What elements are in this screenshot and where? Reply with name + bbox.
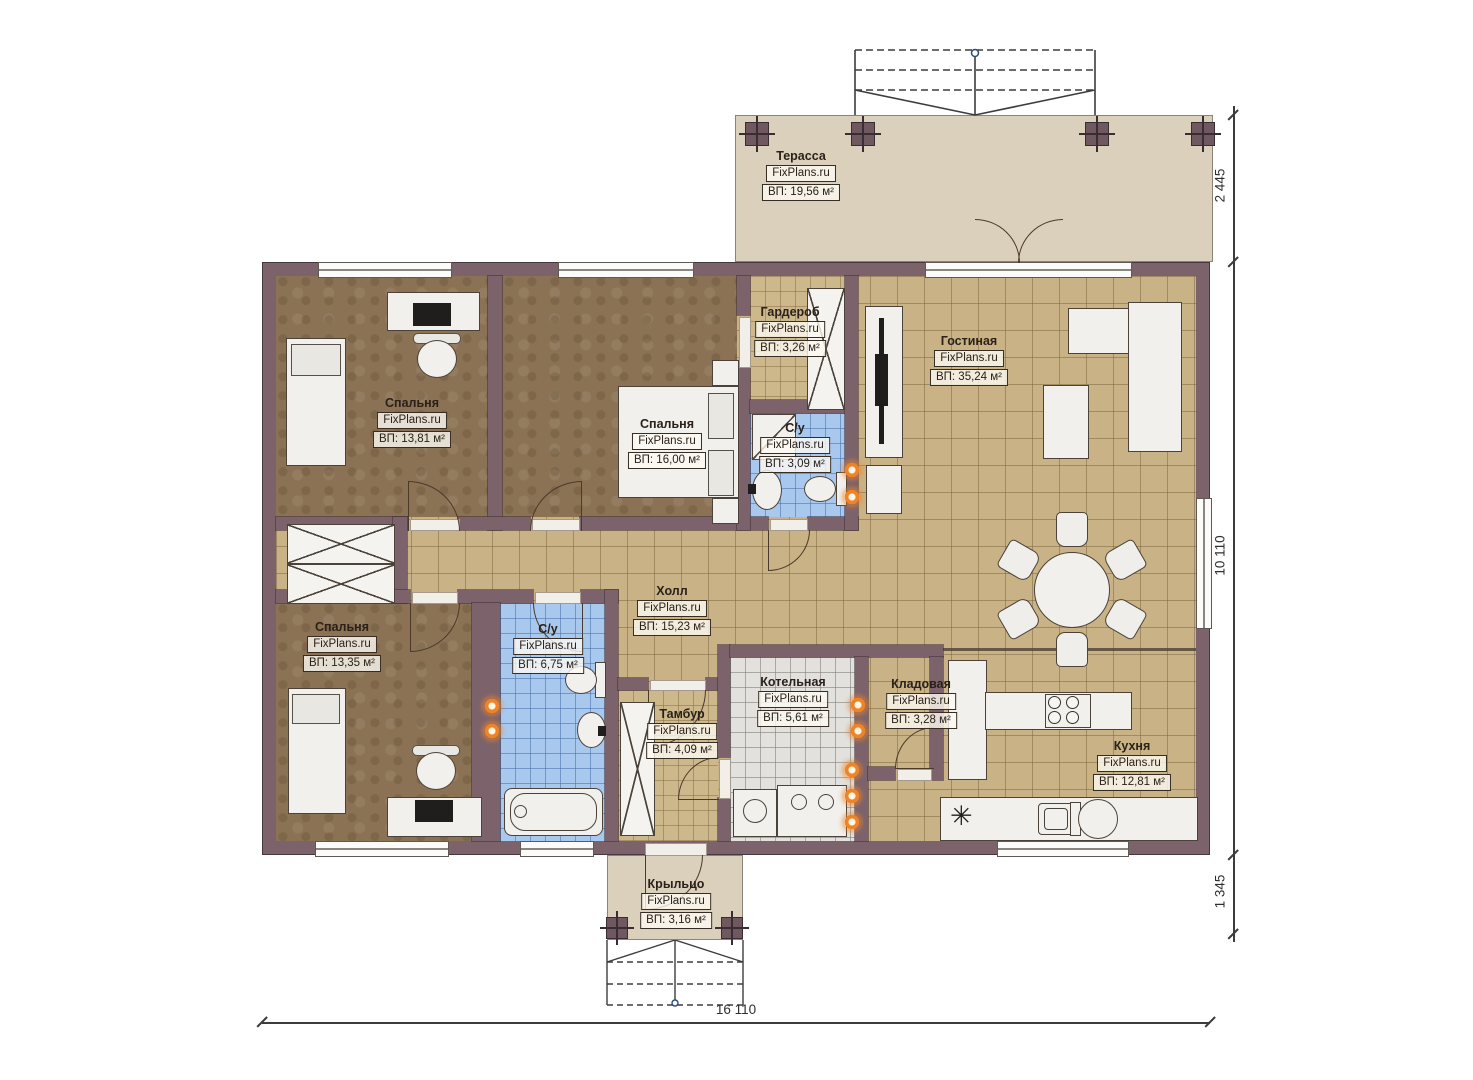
burner-icon xyxy=(1066,711,1079,724)
outlet-icon xyxy=(844,462,860,478)
room-name: Холл xyxy=(656,584,687,598)
room-area: ВП: 6,75 м² xyxy=(512,657,584,674)
terrace-stairs-icon xyxy=(853,46,1097,116)
wall-segment xyxy=(718,645,730,757)
window xyxy=(318,262,452,278)
burner-icon xyxy=(1066,696,1079,709)
hall-closet-icon xyxy=(287,564,395,604)
watermark: FixPlans.ru xyxy=(513,638,583,655)
fridge-icon: ✳ xyxy=(950,803,973,830)
outlet-icon xyxy=(484,723,500,739)
room-area: ВП: 4,09 м² xyxy=(646,742,718,759)
column-icon xyxy=(851,122,875,146)
room-label-living: Гостиная FixPlans.ru ВП: 35,24 м² xyxy=(930,334,1008,386)
computer-icon xyxy=(413,303,451,326)
wall-segment xyxy=(488,276,502,530)
watermark: FixPlans.ru xyxy=(760,437,830,454)
room-label-tambur: Тамбур FixPlans.ru ВП: 4,09 м² xyxy=(646,707,718,759)
column-icon xyxy=(721,917,743,939)
watermark: FixPlans.ru xyxy=(632,433,702,450)
window xyxy=(558,262,694,278)
office-chair-icon xyxy=(416,752,456,790)
nightstand-icon xyxy=(712,360,739,386)
door-threshold xyxy=(719,759,731,799)
hall-closet-icon xyxy=(287,524,395,564)
room-label-boiler: Котельная FixPlans.ru ВП: 5,61 м² xyxy=(757,675,829,727)
column-icon xyxy=(745,122,769,146)
watermark: FixPlans.ru xyxy=(647,723,717,740)
faucet-icon xyxy=(748,484,756,494)
room-name: Кухня xyxy=(1114,739,1151,753)
wall-segment xyxy=(855,657,868,841)
wall-segment xyxy=(718,798,730,841)
dimension-label-house-width: 16 110 xyxy=(696,1002,776,1017)
faucet-icon xyxy=(598,726,606,736)
burner-icon xyxy=(1048,711,1061,724)
dimension-label-house-depth: 10 110 xyxy=(1213,521,1228,591)
pillow-icon xyxy=(708,393,734,439)
room-label-kitchen: Кухня FixPlans.ru ВП: 12,81 м² xyxy=(1093,739,1171,791)
watermark: FixPlans.ru xyxy=(934,350,1004,367)
watermark: FixPlans.ru xyxy=(766,165,836,182)
column-icon xyxy=(1085,122,1109,146)
room-name: Крыльцо xyxy=(648,877,705,891)
wall-segment xyxy=(706,678,718,690)
watermark: FixPlans.ru xyxy=(377,412,447,429)
room-label-wardrobe: Гардероб FixPlans.ru ВП: 3,26 м² xyxy=(754,305,826,357)
watermark: FixPlans.ru xyxy=(637,600,707,617)
boiler-valve-icon xyxy=(818,794,834,810)
dining-chair-icon xyxy=(1056,512,1088,547)
wall-segment xyxy=(458,590,533,603)
watermark: FixPlans.ru xyxy=(307,636,377,653)
boiler-drum-icon xyxy=(743,799,767,823)
watermark: FixPlans.ru xyxy=(641,893,711,910)
boiler-valve-icon xyxy=(791,794,807,810)
room-label-bedroom3: Спальня FixPlans.ru ВП: 13,35 м² xyxy=(303,620,381,672)
room-name: Гостиная xyxy=(941,334,998,348)
watermark: FixPlans.ru xyxy=(758,691,828,708)
dimension-line-right xyxy=(1233,106,1235,942)
dining-table-icon xyxy=(1034,552,1110,628)
room-area: ВП: 13,35 м² xyxy=(303,655,381,672)
room-area: ВП: 3,28 м² xyxy=(885,712,957,729)
room-label-bath1: С/у FixPlans.ru ВП: 3,09 м² xyxy=(759,421,831,473)
room-label-terrace: Терасса FixPlans.ru ВП: 19,56 м² xyxy=(762,149,840,201)
door-threshold xyxy=(739,317,751,368)
room-area: ВП: 5,61 м² xyxy=(757,710,829,727)
dimension-label-terrace-depth: 2 445 xyxy=(1213,151,1228,221)
wall-segment xyxy=(458,517,530,530)
boiler-counter-icon xyxy=(777,785,847,837)
pillow-icon xyxy=(291,344,341,376)
column-icon xyxy=(606,917,628,939)
room-area: ВП: 13,81 м² xyxy=(373,431,451,448)
wall-segment xyxy=(868,767,895,780)
outlet-icon xyxy=(844,814,860,830)
room-area: ВП: 3,16 м² xyxy=(640,912,712,929)
wall-segment xyxy=(618,678,648,690)
dimension-line-bottom xyxy=(262,1022,1210,1024)
room-label-hall: Холл FixPlans.ru ВП: 15,23 м² xyxy=(633,584,711,636)
room-area: ВП: 12,81 м² xyxy=(1093,774,1171,791)
window xyxy=(1196,498,1212,629)
room-name: Котельная xyxy=(760,675,825,689)
sink-basin xyxy=(1044,808,1068,830)
watermark: FixPlans.ru xyxy=(1097,755,1167,772)
pillow-icon xyxy=(292,694,340,724)
door-threshold xyxy=(897,769,932,781)
terrace-door-window xyxy=(925,262,1132,278)
room-name: Гардероб xyxy=(760,305,819,319)
watermark: FixPlans.ru xyxy=(755,321,825,338)
watermark: FixPlans.ru xyxy=(886,693,956,710)
tv-bracket-icon xyxy=(875,354,888,406)
room-name: С/у xyxy=(538,622,557,636)
outlet-icon xyxy=(850,697,866,713)
room-name: Тамбур xyxy=(659,707,704,721)
window xyxy=(520,841,594,857)
window xyxy=(315,841,449,857)
room-area: ВП: 19,56 м² xyxy=(762,184,840,201)
stool-icon xyxy=(1078,799,1118,839)
office-chair-icon xyxy=(417,340,457,378)
room-name: Спальня xyxy=(385,396,439,410)
window xyxy=(997,841,1129,857)
wall-segment xyxy=(737,276,750,315)
sink-icon xyxy=(752,470,782,510)
room-label-bath2: С/у FixPlans.ru ВП: 6,75 м² xyxy=(512,622,584,674)
room-area: ВП: 3,09 м² xyxy=(759,456,831,473)
porch-steps-icon xyxy=(605,940,745,1010)
dimension-label-porch-depth: 1 345 xyxy=(1213,857,1228,927)
coffee-table-icon xyxy=(1043,385,1089,459)
outlet-icon xyxy=(844,762,860,778)
toilet-icon xyxy=(804,476,836,502)
room-area: ВП: 3,26 м² xyxy=(754,340,826,357)
room-label-storage: Кладовая FixPlans.ru ВП: 3,28 м² xyxy=(885,677,957,729)
room-name: С/у xyxy=(785,421,804,435)
room-label-porch: Крыльцо FixPlans.ru ВП: 3,16 м² xyxy=(640,877,712,929)
outlet-icon xyxy=(850,723,866,739)
outlet-icon xyxy=(844,788,860,804)
drain-icon xyxy=(514,805,527,818)
dining-chair-icon xyxy=(1056,632,1088,667)
nightstand-icon xyxy=(712,498,739,524)
room-name: Терасса xyxy=(776,149,826,163)
wall-segment xyxy=(730,645,943,657)
cabinet-icon xyxy=(866,465,902,514)
room-label-bedroom2: Спальня FixPlans.ru ВП: 16,00 м² xyxy=(628,417,706,469)
room-name: Спальня xyxy=(640,417,694,431)
outlet-icon xyxy=(844,489,860,505)
column-icon xyxy=(1191,122,1215,146)
sofa-icon xyxy=(1128,302,1182,452)
wall-segment xyxy=(605,590,618,841)
room-label-bedroom1: Спальня FixPlans.ru ВП: 13,81 м² xyxy=(373,396,451,448)
outlet-icon xyxy=(484,698,500,714)
pillow-icon xyxy=(708,450,734,496)
burner-icon xyxy=(1048,696,1061,709)
room-name: Спальня xyxy=(315,620,369,634)
room-area: ВП: 16,00 м² xyxy=(628,452,706,469)
computer-icon xyxy=(415,800,453,822)
room-name: Кладовая xyxy=(891,677,951,691)
floor-plan: ✳ Терасса FixPlans.ru ВП: 19,56 м² Спаль… xyxy=(0,0,1473,1080)
room-area: ВП: 35,24 м² xyxy=(930,369,1008,386)
room-area: ВП: 15,23 м² xyxy=(633,619,711,636)
